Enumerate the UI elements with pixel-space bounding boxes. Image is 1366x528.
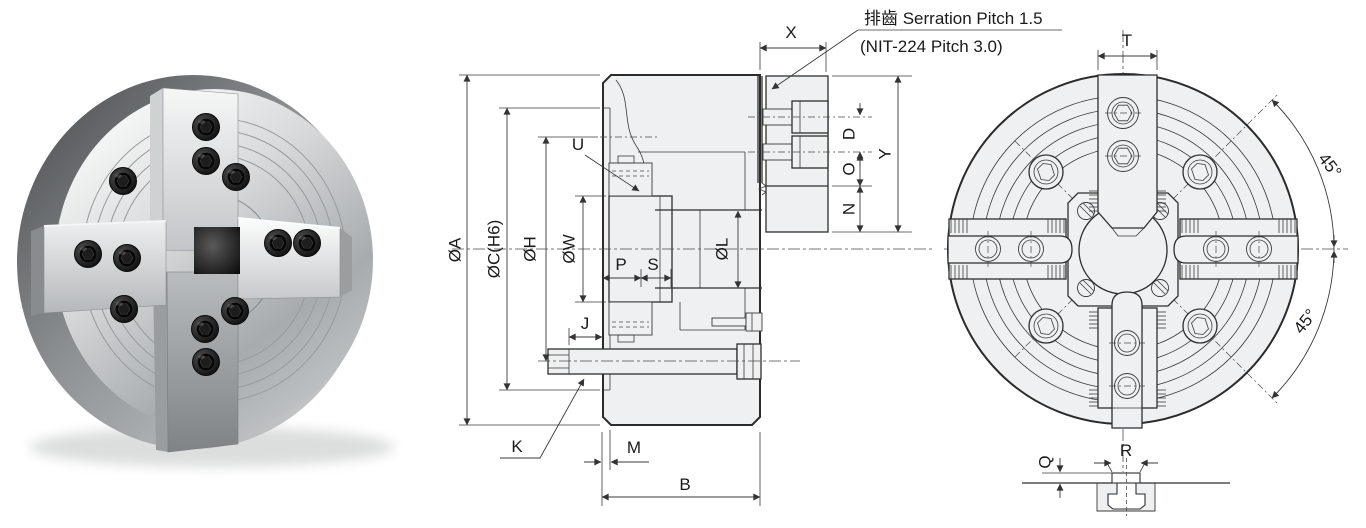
dim-n: N xyxy=(832,186,912,232)
front-view: T 45° 45° xyxy=(944,30,1348,472)
dim-label-s: S xyxy=(647,255,658,274)
dim-label-dia-l: ØL xyxy=(712,238,731,261)
serration-note-line2: (NIT-224 Pitch 3.0) xyxy=(860,37,1003,56)
center-block xyxy=(194,227,240,274)
dim-label-t: T xyxy=(1122,31,1132,50)
dim-label-dia-w: ØW xyxy=(559,234,578,263)
dim-label-b: B xyxy=(679,475,690,494)
dim-j: J xyxy=(569,314,602,345)
dim-label-m: M xyxy=(627,438,641,457)
dim-b: B xyxy=(602,432,760,506)
dim-label-y: Y xyxy=(875,148,894,159)
dim-label-u: U xyxy=(572,135,584,154)
dim-x: X xyxy=(760,23,826,72)
dim-label-j: J xyxy=(581,314,590,333)
dim-r: R xyxy=(1094,441,1158,472)
dim-k: K xyxy=(500,379,584,458)
dim-d: D xyxy=(839,103,860,166)
front-jaw-top xyxy=(1098,75,1157,236)
dim-label-q: Q xyxy=(1035,455,1054,468)
dim-m: M xyxy=(584,430,649,470)
detail-view: R Q xyxy=(1022,441,1230,516)
dim-label-dia-h: ØH xyxy=(520,236,539,262)
jaw-left xyxy=(31,221,166,316)
dim-o: O xyxy=(832,152,872,186)
dim-label-45-lower: 45° xyxy=(1290,305,1321,337)
draw-screw xyxy=(548,344,761,379)
dim-label-n: N xyxy=(839,203,858,215)
dim-label-d: D xyxy=(839,128,858,140)
dim-label-x: X xyxy=(785,23,796,42)
dim-label-dia-a: ØA xyxy=(445,237,464,262)
dim-label-o: O xyxy=(839,162,858,175)
chuck-photo xyxy=(17,75,394,467)
dim-label-r: R xyxy=(1120,441,1132,460)
front-jaw-bottom xyxy=(1098,292,1157,428)
detail-key-tongue xyxy=(1112,473,1140,483)
dim-label-k: K xyxy=(511,437,523,456)
chuck-specification-figure: ØA ØC(H6) ØH ØW ØL xyxy=(0,0,1366,528)
section-view: ØA ØC(H6) ØH ØW ØL xyxy=(445,23,935,506)
technical-drawing: ØA ØC(H6) ØH ØW ØL xyxy=(0,0,1366,528)
jaw-right xyxy=(238,218,352,299)
dim-label-dia-c: ØC(H6) xyxy=(484,220,503,279)
serration-note-line1: 排齒 Serration Pitch 1.5 xyxy=(864,9,1043,28)
dim-label-p: P xyxy=(615,255,626,274)
dim-label-45-upper: 45° xyxy=(1314,149,1345,181)
dim-t: T xyxy=(1098,31,1157,70)
